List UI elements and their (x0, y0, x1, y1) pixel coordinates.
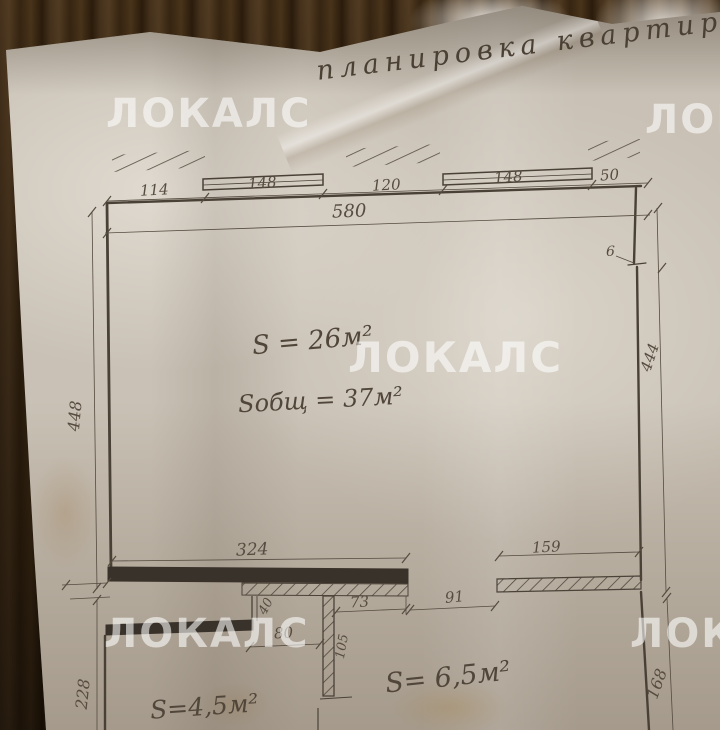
dim-left-448: 448 (66, 400, 85, 432)
dim-hall-73: 73 (350, 595, 370, 611)
paper-sheet: планировка квартиры 114 148 120 148 50 5… (0, 0, 720, 730)
dim-bottom-159: 159 (532, 539, 561, 555)
dim-notch-6: 6 (606, 245, 615, 259)
watermark-bottom-left: ЛОКАЛС (104, 614, 309, 654)
area-left-room: S=4,5м² (149, 690, 259, 723)
watermark-bottom-right: ЛОКАЛС (630, 614, 720, 654)
dim-top-114: 114 (140, 182, 169, 198)
watermark-top-right: ЛОКАЛС (645, 100, 720, 140)
dim-door-91: 91 (444, 589, 464, 606)
dim-top-50: 50 (600, 167, 620, 183)
exterior-wall-hatching (112, 139, 640, 172)
dim-top-148b: 148 (494, 169, 524, 186)
dim-top-120: 120 (372, 177, 401, 193)
dim-top-148a: 148 (248, 175, 278, 192)
dim-top-total-580: 580 (332, 202, 367, 221)
photo-of-floor-plan: планировка квартиры 114 148 120 148 50 5… (0, 0, 720, 730)
dim-bottom-324: 324 (236, 541, 269, 559)
watermark-center: ЛОКАЛС (348, 337, 563, 379)
watermark-top-left: ЛОКАЛС (106, 94, 311, 134)
dim-left-lower-228: 228 (74, 678, 93, 710)
